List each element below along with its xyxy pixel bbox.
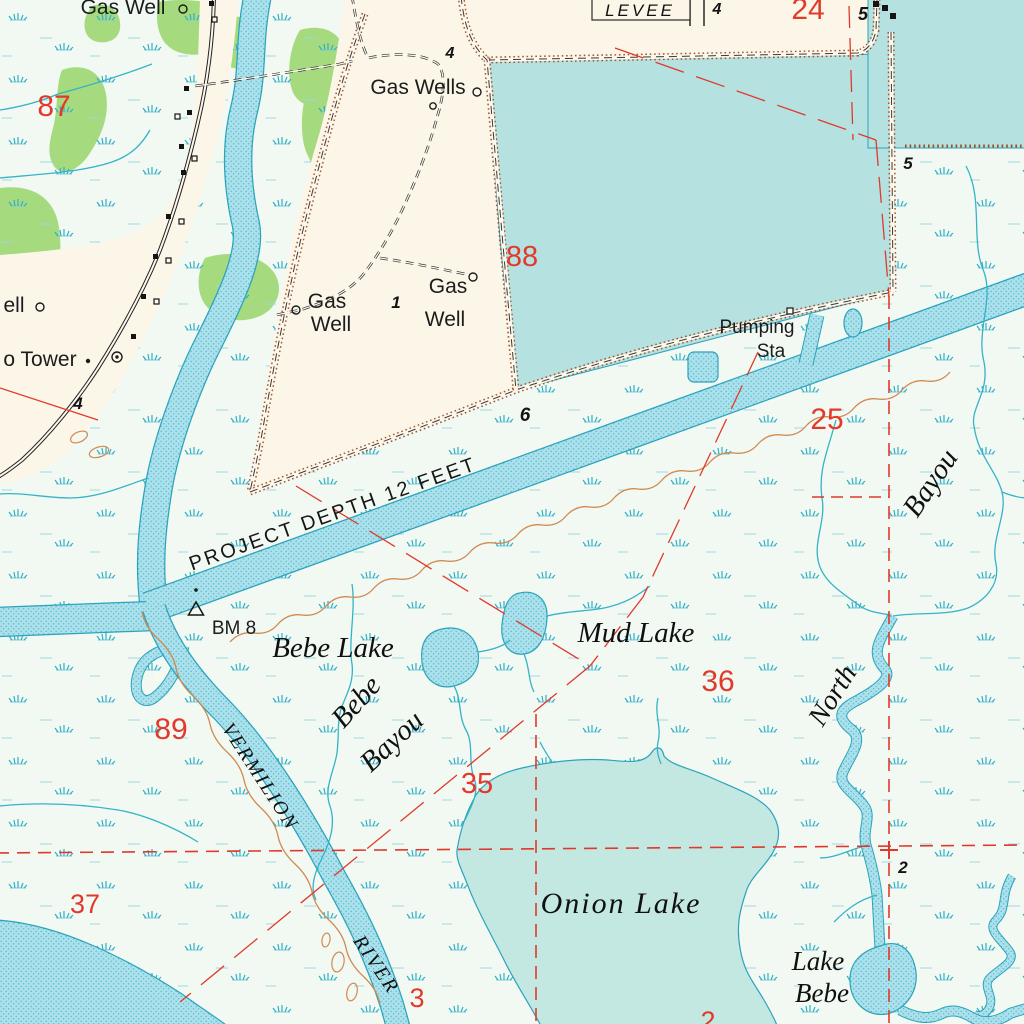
label-sta: Sta [757, 341, 786, 362]
levee-number-6: 6 [520, 405, 531, 426]
label-gas-well-top: Gas Well [81, 0, 166, 19]
label-gas-right-1: Gas [429, 275, 468, 298]
label-pumping: Pumping [720, 317, 795, 338]
levee-number-5b: 5 [903, 154, 913, 173]
label-mud-lake: Mud Lake [577, 617, 695, 649]
label-bebe-lake: Bebe Lake [272, 632, 394, 664]
section-number-24: 24 [791, 0, 824, 26]
bebe-lake-pond [422, 628, 479, 687]
section-number-25: 25 [810, 403, 843, 436]
section-number-89: 89 [154, 713, 187, 746]
label-lake-bebe-1: Lake [791, 946, 845, 976]
levee-number-5a: 5 [858, 4, 869, 24]
topo-map-canvas[interactable]: Gas Well Gas Wells Gas Well Gas Well Pum… [0, 0, 1024, 1024]
section-number-3: 3 [409, 983, 424, 1013]
section-number-88: 88 [506, 241, 538, 273]
road-number-4: 4 [72, 394, 83, 413]
label-gas-left-1: Gas [308, 290, 347, 313]
section-number-35: 35 [461, 768, 493, 800]
levee-number-4a: 4 [445, 45, 455, 62]
levee-number-4b: 4 [712, 1, 722, 18]
label-lake-bebe-2: Bebe [795, 978, 849, 1008]
label-well-partial: ell [3, 294, 24, 317]
trail-number-1: 1 [391, 293, 400, 312]
label-tower: o Tower [3, 348, 76, 371]
label-well-left-1: Well [311, 313, 351, 336]
label-well-right-1: Well [425, 308, 465, 331]
label-levee: LEVEE [605, 1, 675, 20]
levee-east [891, 32, 893, 292]
label-gas-wells: Gas Wells [370, 76, 465, 99]
bayou-number-2: 2 [897, 858, 908, 877]
map-svg: Gas Well Gas Wells Gas Well Gas Well Pum… [0, 0, 1024, 1024]
label-bm-8: BM 8 [212, 618, 256, 639]
section-number-36: 36 [701, 665, 734, 698]
section-number-87: 87 [37, 90, 70, 123]
label-onion-lake: Onion Lake [541, 887, 702, 920]
section-number-37: 37 [70, 889, 100, 919]
section-number-2-partial: 2 [700, 1006, 715, 1024]
